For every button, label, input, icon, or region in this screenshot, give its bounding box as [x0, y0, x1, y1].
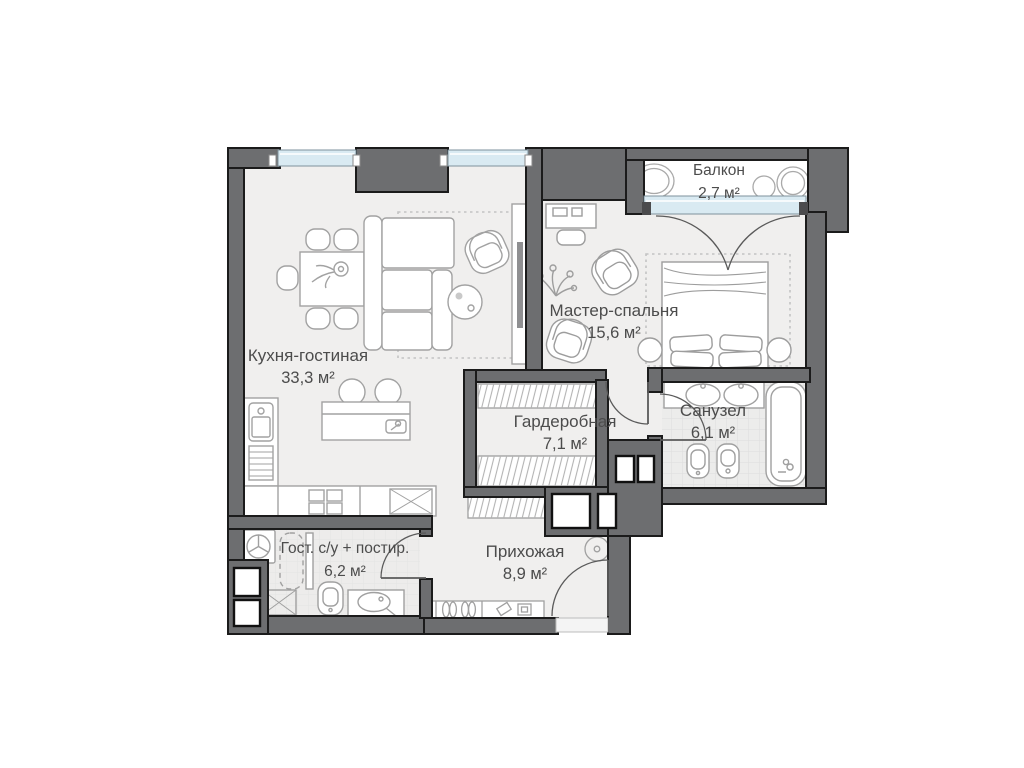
sink	[348, 590, 404, 616]
toilet	[687, 444, 709, 478]
utility-shaft	[234, 568, 260, 596]
kitchen-counter-sink	[244, 398, 278, 486]
wall-wardrobe-left	[464, 370, 476, 497]
bidet	[717, 444, 739, 478]
balcony-glazing	[642, 196, 808, 215]
tv-screen	[517, 242, 523, 328]
wall-bathroom-left-a	[648, 368, 662, 392]
balcony-door-frame	[799, 202, 808, 215]
wall-bottom-hallway	[420, 618, 558, 634]
wall-right	[806, 212, 826, 504]
window	[278, 150, 356, 166]
nightstand	[638, 338, 662, 362]
wall-guest-top	[228, 516, 432, 529]
toilet	[318, 582, 343, 615]
shoe-cabinet	[420, 601, 544, 618]
utility-shaft	[638, 456, 654, 482]
floor-plan: Кухня-гостиная 33,3 м² Мастер-спальня 15…	[0, 0, 1024, 768]
wall-bedroom-south	[464, 370, 606, 382]
bathtub	[766, 382, 806, 486]
double-bed	[662, 262, 768, 368]
washing-machine	[242, 530, 275, 563]
planter	[753, 176, 775, 198]
wardrobe-rack	[478, 384, 596, 408]
tv-console	[512, 204, 526, 364]
coffee-table	[448, 285, 482, 319]
desk-chair	[557, 230, 585, 245]
utility-shaft	[616, 456, 634, 482]
wall-wardrobe-right	[596, 380, 608, 497]
wall-wardrobe-bottom-a	[464, 487, 550, 497]
wardrobe-rack	[478, 456, 596, 486]
floor-plan-drawing	[0, 0, 1024, 768]
utility-shaft	[234, 600, 260, 626]
hallway-closet-rack	[468, 497, 548, 518]
wall-window-pier	[356, 148, 448, 192]
bar-stool	[375, 379, 401, 405]
balcony-door-frame	[642, 202, 651, 215]
utility-shaft	[552, 494, 590, 528]
wall-living-bedroom	[526, 148, 542, 374]
sofa	[364, 216, 454, 350]
wall-bathroom-top	[648, 368, 810, 382]
cabinet	[306, 533, 313, 589]
utility-shaft	[598, 494, 616, 528]
kitchen-island	[322, 402, 410, 440]
nightstand	[767, 338, 791, 362]
window	[448, 150, 528, 166]
dining-table	[300, 252, 364, 306]
bar-stool	[339, 379, 365, 405]
wall-guest-right-b	[420, 579, 432, 618]
kitchen-counter-cooktop	[244, 486, 436, 516]
